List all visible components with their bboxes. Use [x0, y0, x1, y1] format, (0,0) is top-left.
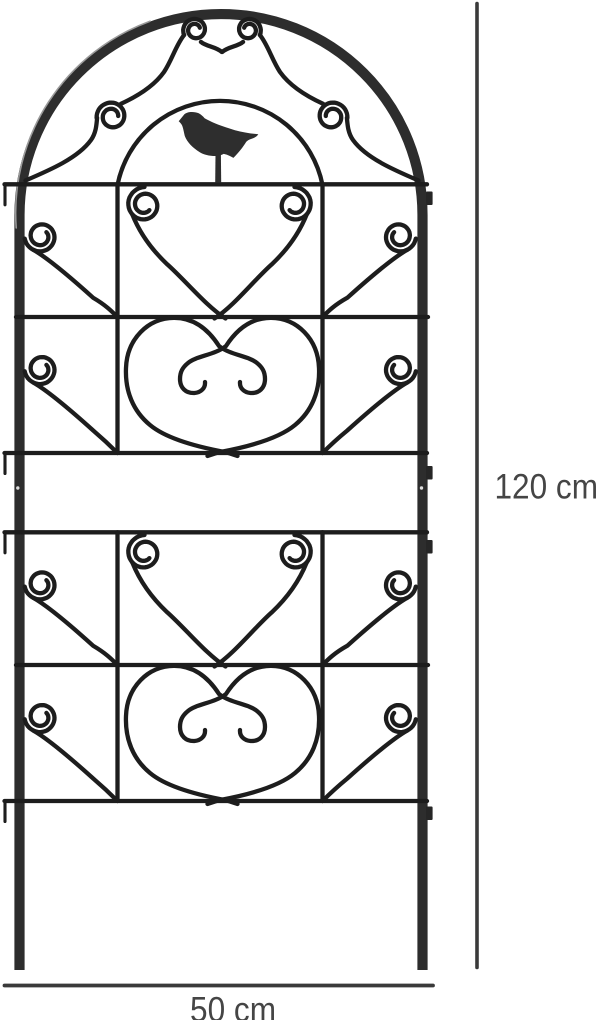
- svg-text:50 cm: 50 cm: [190, 989, 276, 1020]
- svg-text:120 cm: 120 cm: [495, 468, 599, 507]
